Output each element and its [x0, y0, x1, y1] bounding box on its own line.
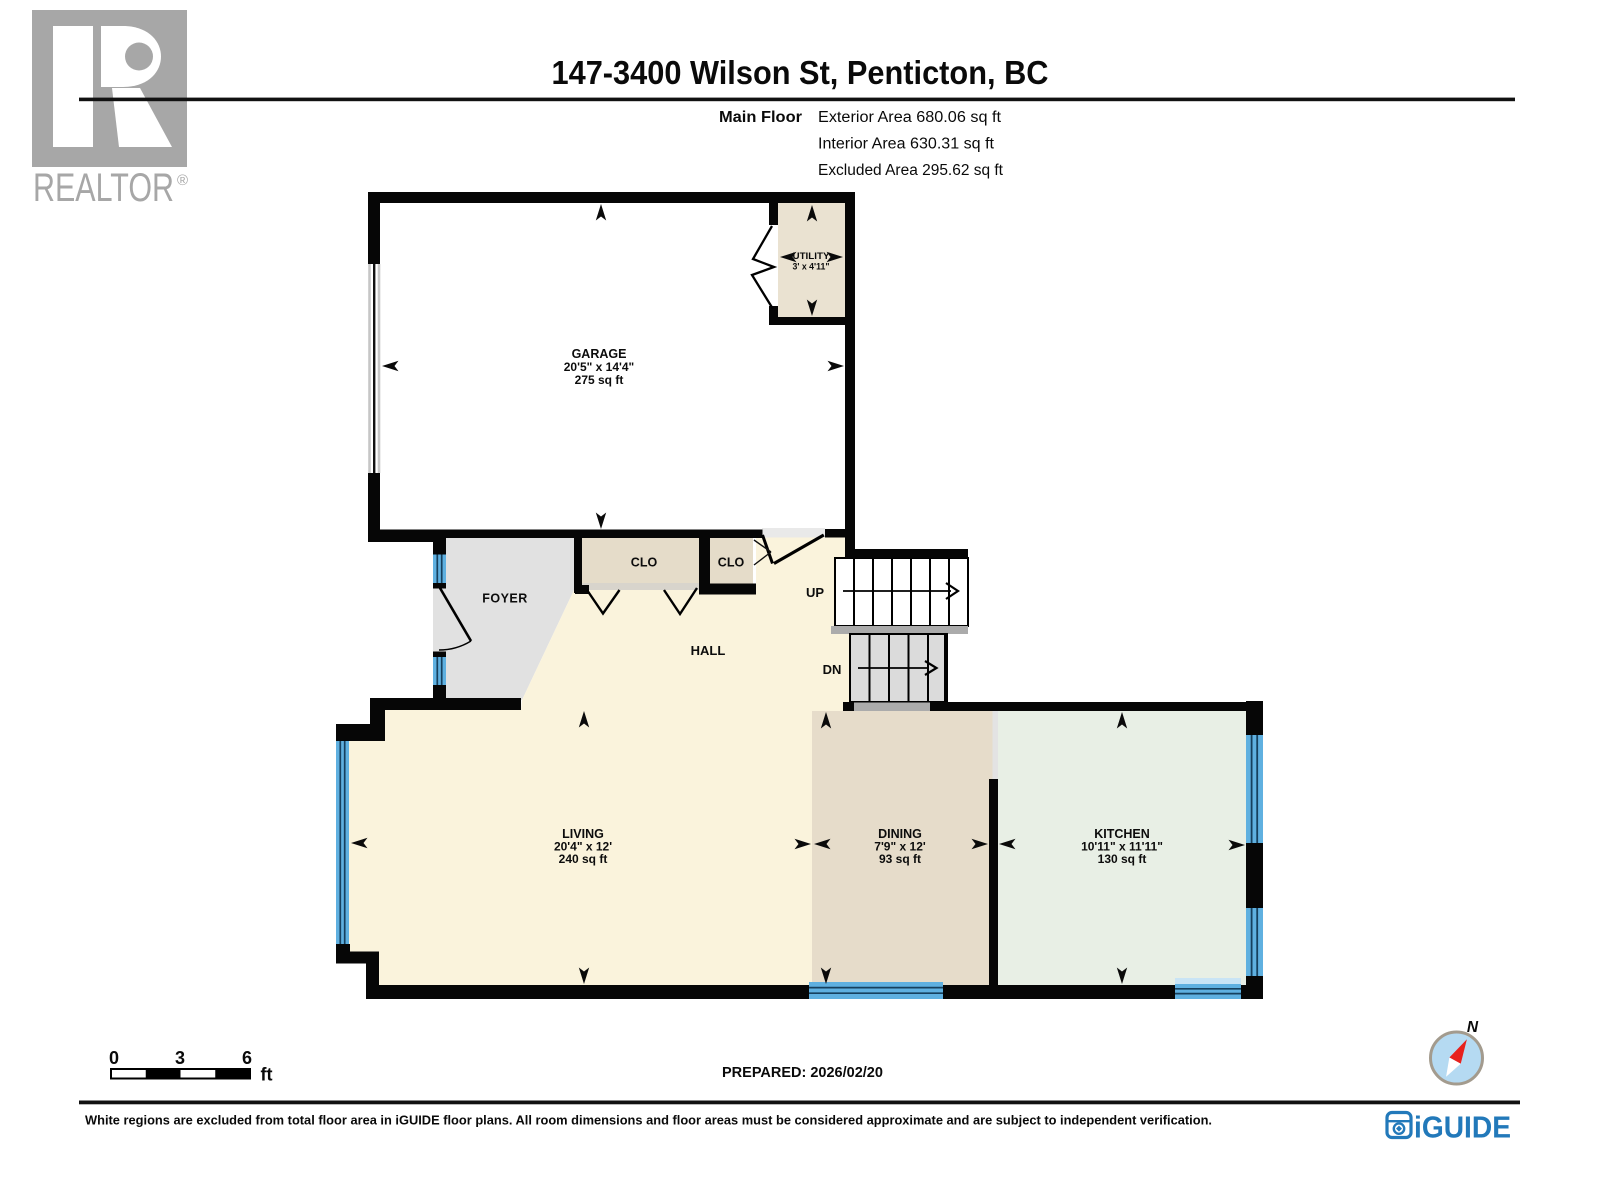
- svg-text:0: 0: [109, 1048, 119, 1068]
- svg-text:Exterior Area 680.06 sq ft: Exterior Area 680.06 sq ft: [818, 109, 1002, 126]
- svg-text:CLO: CLO: [631, 556, 658, 570]
- svg-text:DN: DN: [823, 662, 842, 677]
- svg-text:REALTOR: REALTOR: [33, 166, 174, 210]
- svg-text:93 sq ft: 93 sq ft: [879, 852, 921, 866]
- svg-text:3: 3: [175, 1048, 185, 1068]
- svg-text:N: N: [1467, 1019, 1479, 1036]
- svg-text:275 sq ft: 275 sq ft: [575, 373, 624, 387]
- svg-text:PREPARED: 2026/02/20: PREPARED: 2026/02/20: [722, 1065, 883, 1081]
- svg-text:6: 6: [242, 1048, 252, 1068]
- svg-text:HALL: HALL: [691, 643, 726, 658]
- svg-text:iGUIDE: iGUIDE: [1414, 1111, 1511, 1145]
- svg-text:147-3400 Wilson St, Penticton,: 147-3400 Wilson St, Penticton, BC: [552, 55, 1049, 92]
- svg-text:CLO: CLO: [718, 556, 745, 570]
- svg-text:Interior Area 630.31 sq ft: Interior Area 630.31 sq ft: [818, 136, 995, 153]
- svg-text:20'5" x 14'4": 20'5" x 14'4": [564, 360, 634, 374]
- svg-text:240 sq ft: 240 sq ft: [559, 852, 608, 866]
- svg-text:FOYER: FOYER: [482, 592, 528, 606]
- svg-text:White regions are excluded fro: White regions are excluded from total fl…: [85, 1113, 1212, 1128]
- svg-text:UP: UP: [806, 585, 824, 600]
- svg-text:ft: ft: [261, 1065, 273, 1085]
- svg-text:3' x 4'11": 3' x 4'11": [793, 262, 830, 273]
- svg-text:Excluded Area 295.62 sq ft: Excluded Area 295.62 sq ft: [818, 162, 1004, 179]
- svg-text:UTILITY: UTILITY: [793, 251, 831, 262]
- svg-text:Main Floor: Main Floor: [719, 109, 802, 126]
- svg-text:130 sq ft: 130 sq ft: [1098, 852, 1147, 866]
- svg-text:GARAGE: GARAGE: [572, 347, 627, 361]
- svg-text:®: ®: [177, 172, 188, 189]
